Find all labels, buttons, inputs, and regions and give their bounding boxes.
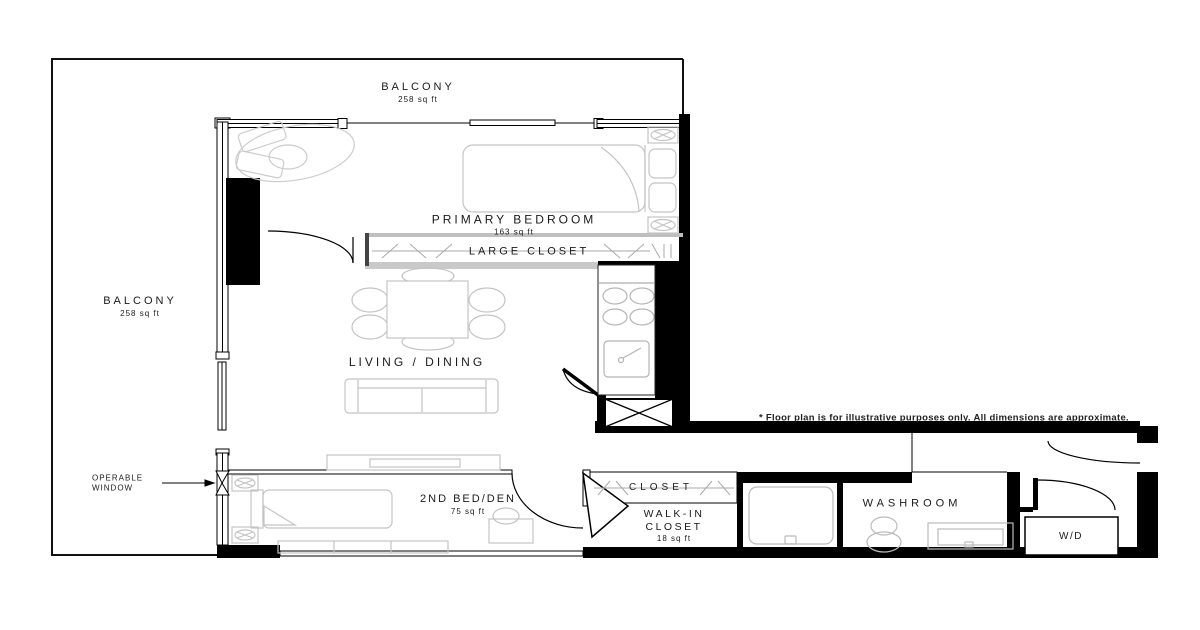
- primary-bedroom-door-arc: [268, 231, 353, 263]
- wd-door-arc: [1037, 480, 1115, 510]
- room-name: BALCONY: [381, 81, 455, 94]
- sofa-icon: [345, 379, 498, 413]
- den-bed-icon: [232, 475, 392, 543]
- second-bed-den-label: 2ND BED/DEN 75 sq ft: [420, 493, 516, 517]
- closet-label: CLOSET: [629, 482, 693, 494]
- operable-window-label: OPERABLE WINDOW: [92, 474, 143, 495]
- nightstand-icons: [648, 127, 678, 233]
- primary-bed-icon: [463, 145, 676, 212]
- large-closet-label: LARGE CLOSET: [469, 245, 589, 258]
- room-area: 163 sq ft: [432, 228, 597, 238]
- room-area: 75 sq ft: [420, 507, 516, 517]
- entry-door-arc: [1048, 441, 1140, 463]
- primary-bedroom-label: PRIMARY BEDROOM 163 sq ft: [432, 213, 597, 238]
- room-name-line2: CLOSET: [644, 521, 705, 534]
- shower-icon: [749, 487, 833, 544]
- disclaimer-text: * Floor plan is for illustrative purpose…: [759, 412, 1129, 423]
- walk-in-closet-label: WALK-IN CLOSET 18 sq ft: [644, 508, 705, 544]
- room-name: PRIMARY BEDROOM: [432, 213, 597, 227]
- media-console-icon: [327, 455, 500, 470]
- kitchen-counter: [598, 265, 655, 395]
- room-area: 258 sq ft: [381, 95, 455, 105]
- toilet-icon: [867, 517, 901, 552]
- room-name: LIVING / DINING: [349, 355, 485, 369]
- room-area: 258 sq ft: [103, 309, 177, 319]
- den-door-arc: [512, 473, 583, 528]
- annotation-line1: OPERABLE: [92, 474, 143, 484]
- living-dining-label: LIVING / DINING: [349, 355, 485, 369]
- kitchen-door-leaf: [563, 369, 598, 395]
- room-name-line1: WALK-IN: [644, 508, 705, 521]
- room-name: CLOSET: [629, 482, 693, 494]
- room-name: LARGE CLOSET: [469, 245, 589, 258]
- vanity-icon: [928, 523, 1013, 549]
- room-name: WASHROOM: [863, 497, 962, 510]
- shaft-box: [605, 399, 673, 427]
- room-name: 2ND BED/DEN: [420, 493, 516, 506]
- balcony-left-label: BALCONY 258 sq ft: [103, 295, 177, 319]
- room-name: BALCONY: [103, 295, 177, 308]
- washroom-label: WASHROOM: [863, 497, 962, 510]
- annotation-line2: WINDOW: [92, 484, 143, 494]
- dining-table-icon: [352, 268, 505, 350]
- room-area: 18 sq ft: [644, 534, 705, 544]
- washer-dryer-label: W/D: [1059, 531, 1083, 543]
- room-name: W/D: [1059, 531, 1083, 543]
- balcony-top-label: BALCONY 258 sq ft: [381, 81, 455, 105]
- floor-plan-drawing: [0, 0, 1200, 630]
- thin-walls: [228, 433, 1007, 556]
- floor-plan-canvas: BALCONY 258 sq ft BALCONY 258 sq ft PRIM…: [0, 0, 1200, 630]
